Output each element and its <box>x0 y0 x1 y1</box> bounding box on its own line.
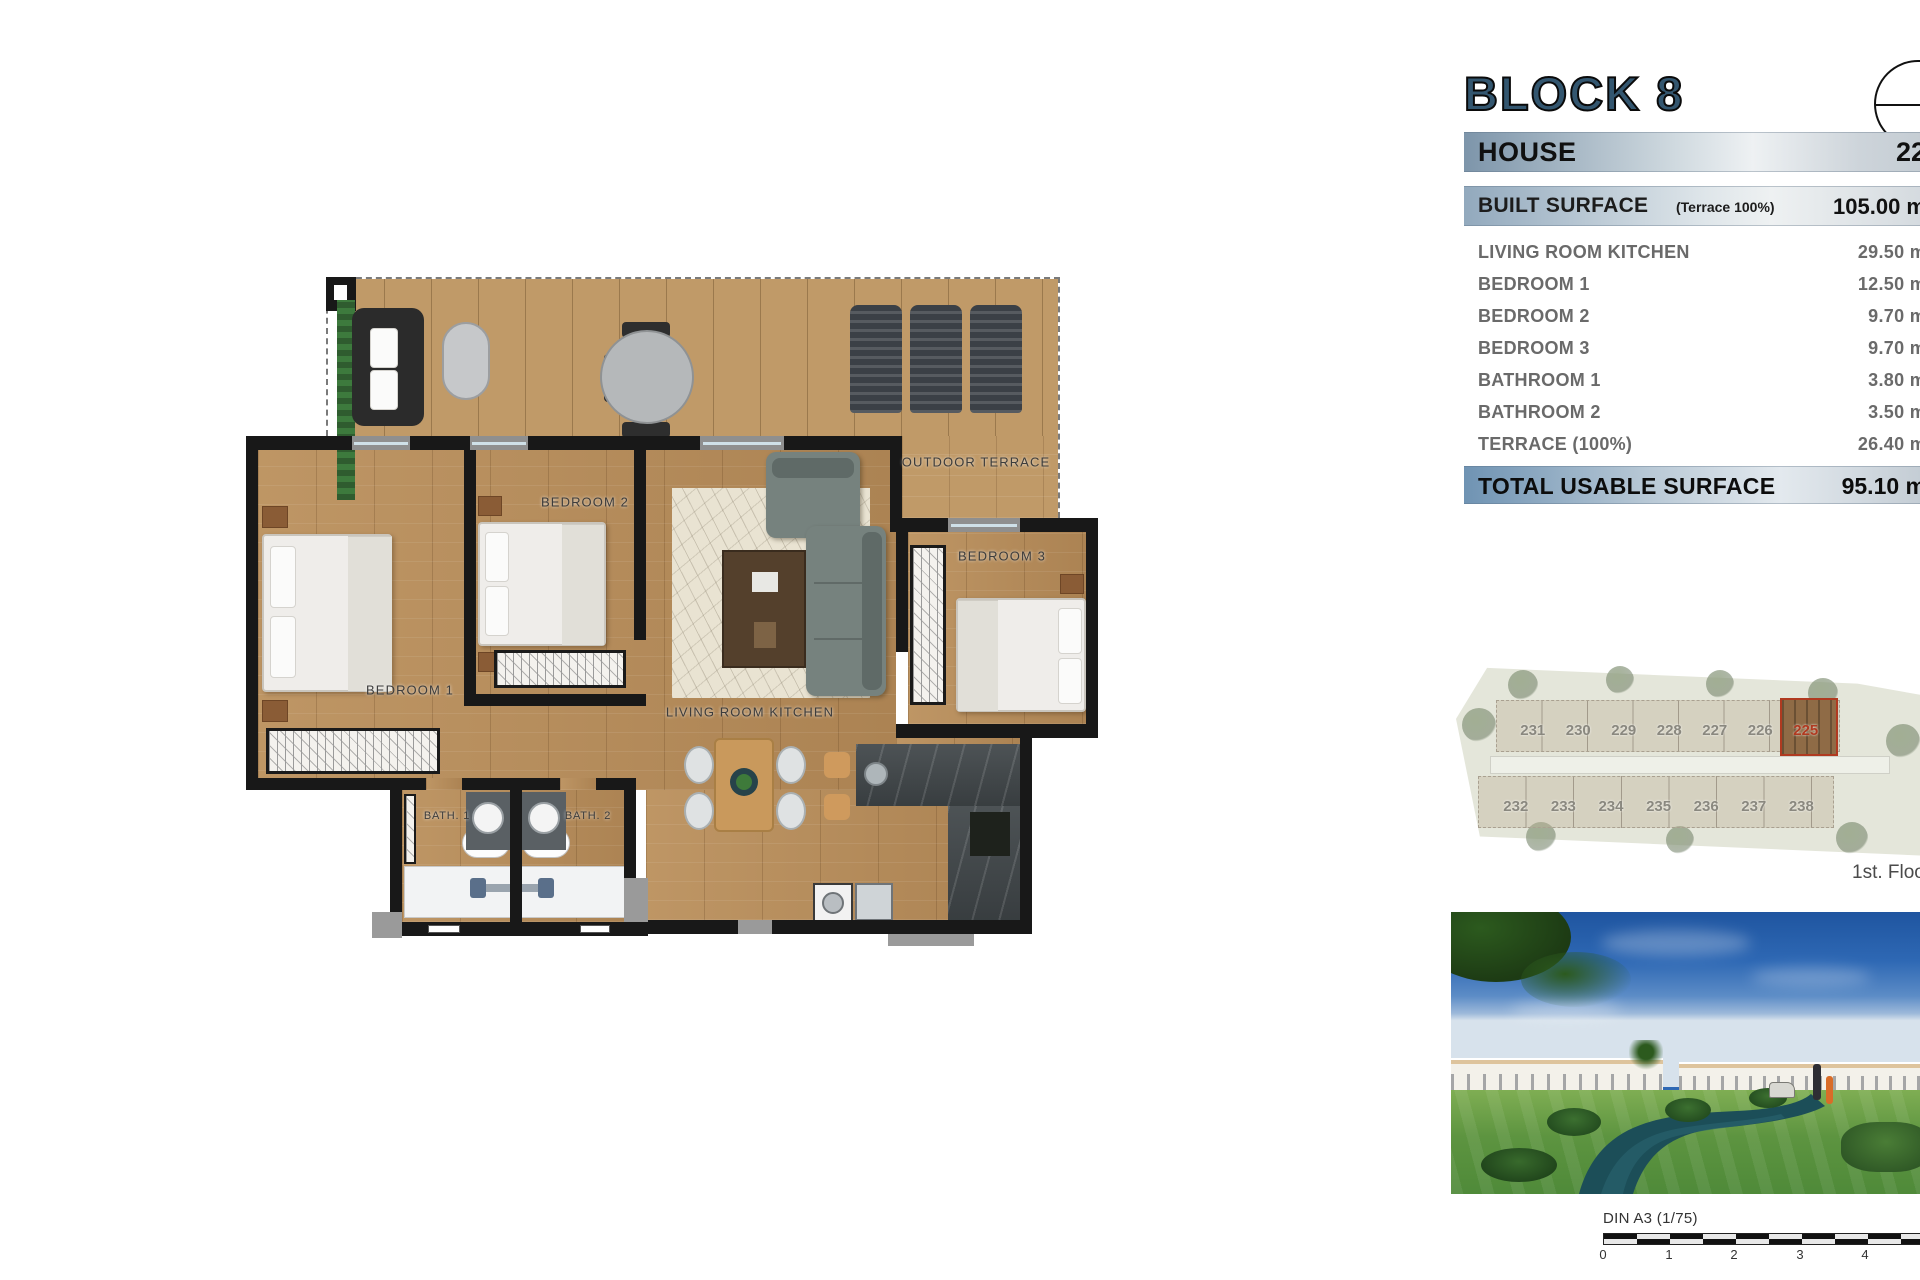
floor-caption: 1st. Floor <box>1852 862 1920 884</box>
nightstand <box>478 496 502 516</box>
kitchen-sink-unit <box>855 883 893 921</box>
sun-lounger <box>850 305 902 413</box>
unit-number: 236 <box>1682 798 1730 815</box>
dining-chair <box>684 746 714 784</box>
shower-head <box>538 878 554 898</box>
table-centerpiece <box>730 768 758 796</box>
bedroom3-wardrobe <box>910 545 946 705</box>
nightstand <box>262 506 288 528</box>
label-outdoor-terrace: OUTDOOR TERRACE <box>902 455 1050 470</box>
sun-lounger <box>970 305 1022 413</box>
unit-number: 228 <box>1647 722 1693 739</box>
unit-number: 231 <box>1510 722 1556 739</box>
house-label: HOUSE <box>1478 137 1577 168</box>
bedroom1-wardrobe <box>266 728 440 774</box>
terrace-sofa <box>352 308 424 426</box>
coffee-table <box>722 550 806 668</box>
bath2-vanity <box>522 792 566 850</box>
golf-cart <box>1769 1082 1795 1098</box>
surface-row: BEDROOM 1 12.50 m <box>1464 268 1920 300</box>
label-bedroom1: BEDROOM 1 <box>366 683 454 698</box>
surface-row-label: LIVING ROOM KITCHEN <box>1478 236 1690 268</box>
built-surface-label: BUILT SURFACE <box>1478 194 1648 218</box>
terrace-side-table <box>442 322 490 400</box>
surface-list: LIVING ROOM KITCHEN 29.50 m BEDROOM 1 12… <box>1464 236 1920 460</box>
siteplan-walkway <box>1490 756 1890 774</box>
scale-tick: 0 <box>1599 1247 1606 1262</box>
dining-chair <box>684 792 714 830</box>
unit-number: 229 <box>1601 722 1647 739</box>
surface-row-value: 29.50 m <box>1858 236 1920 268</box>
golfer <box>1826 1076 1833 1104</box>
bedroom1-bed <box>262 534 392 692</box>
dining-chair <box>776 746 806 784</box>
total-row: TOTAL USABLE SURFACE 95.10 m <box>1464 466 1920 504</box>
golf-course-photo <box>1451 912 1920 1194</box>
terrace-floor-right <box>902 436 1058 518</box>
built-surface-value: 105.00 m <box>1833 194 1920 220</box>
built-surface-note: (Terrace 100%) <box>1676 199 1775 215</box>
rough-grass <box>1841 1122 1920 1172</box>
sun-lounger <box>910 305 962 413</box>
shower-head <box>470 878 486 898</box>
kitchen-stove <box>970 812 1010 856</box>
siteplan-top-units: 231230229228227226225 <box>1510 722 1829 739</box>
scale-bar-label: DIN A3 (1/75) <box>1603 1210 1920 1227</box>
scale-bar: DIN A3 (1/75) 01234 <box>1603 1210 1920 1265</box>
golfer <box>1813 1064 1821 1100</box>
unit-number: 225 <box>1783 722 1829 739</box>
unit-number: 230 <box>1556 722 1602 739</box>
surface-row: LIVING ROOM KITCHEN 29.50 m <box>1464 236 1920 268</box>
siteplan: 231230229228227226225 232233234235236237… <box>1456 664 1920 860</box>
kitchen-stool <box>824 794 850 820</box>
surface-row: BATHROOM 2 3.50 m <box>1464 396 1920 428</box>
unit-number: 234 <box>1587 798 1635 815</box>
unit-number: 238 <box>1778 798 1826 815</box>
terrace-dashed-right <box>1058 277 1060 518</box>
bedroom2-bed <box>478 522 606 646</box>
unit-number: 226 <box>1738 722 1784 739</box>
surface-row-value: 3.80 m <box>1868 364 1920 396</box>
scale-tick: 1 <box>1665 1247 1672 1262</box>
sofa <box>806 526 886 696</box>
surface-row-label: TERRACE (100%) <box>1478 428 1632 460</box>
washing-machine <box>813 883 853 923</box>
nightstand <box>262 700 288 722</box>
nightstand <box>1060 574 1084 594</box>
bath-closet <box>404 794 416 864</box>
label-living-room: LIVING ROOM KITCHEN <box>666 705 834 720</box>
house-value: 22 <box>1896 137 1920 168</box>
surface-row-value: 12.50 m <box>1858 268 1920 300</box>
surface-row-label: BATHROOM 1 <box>1478 364 1601 396</box>
label-bedroom3: BEDROOM 3 <box>958 549 1046 564</box>
bedroom2-wardrobe <box>494 650 626 688</box>
kitchen-stool <box>824 752 850 778</box>
built-surface-row: BUILT SURFACE (Terrace 100%) 105.00 m <box>1464 186 1920 226</box>
siteplan-bottom-units: 232233234235236237238 <box>1492 798 1825 815</box>
scale-bar-graphic <box>1603 1233 1920 1245</box>
dining-chair <box>776 792 806 830</box>
surface-row-label: BEDROOM 2 <box>1478 300 1590 332</box>
surface-row-label: BATHROOM 2 <box>1478 396 1601 428</box>
scale-tick: 2 <box>1730 1247 1737 1262</box>
surface-row-label: BEDROOM 3 <box>1478 332 1590 364</box>
surface-row-value: 9.70 m <box>1868 332 1920 364</box>
terrace-dining-table <box>600 330 694 424</box>
unit-number: 237 <box>1730 798 1778 815</box>
unit-number: 227 <box>1692 722 1738 739</box>
total-value: 95.10 m <box>1842 473 1920 500</box>
surface-row: BEDROOM 2 9.70 m <box>1464 300 1920 332</box>
surface-row-value: 3.50 m <box>1868 396 1920 428</box>
bedroom3-bed <box>956 598 1086 712</box>
unit-number: 235 <box>1635 798 1683 815</box>
label-bath2: BATH. 2 <box>565 810 611 822</box>
surface-row: TERRACE (100%) 26.40 m <box>1464 428 1920 460</box>
bath1-vanity <box>466 792 510 850</box>
surface-row-value: 9.70 m <box>1868 300 1920 332</box>
bush <box>1547 1108 1601 1136</box>
plan-sheet: OUTDOOR TERRACE BEDROOM 1 BEDROOM 2 BEDR… <box>0 0 1920 1280</box>
surface-row-value: 26.40 m <box>1858 428 1920 460</box>
surface-row-label: BEDROOM 1 <box>1478 268 1590 300</box>
unit-number: 232 <box>1492 798 1540 815</box>
scale-tick: 3 <box>1796 1247 1803 1262</box>
unit-number: 233 <box>1540 798 1588 815</box>
label-bedroom2: BEDROOM 2 <box>541 495 629 510</box>
surface-row: BATHROOM 1 3.80 m <box>1464 364 1920 396</box>
label-bath1: BATH. 1 <box>424 810 470 822</box>
total-label: TOTAL USABLE SURFACE <box>1478 473 1775 500</box>
block-title: BLOCK 8 <box>1464 66 1684 121</box>
surface-row: BEDROOM 3 9.70 m <box>1464 332 1920 364</box>
terrace-dashed-top <box>326 277 1060 279</box>
house-row: HOUSE 22 <box>1464 132 1920 172</box>
kitchen-sink <box>864 762 888 786</box>
scale-tick: 4 <box>1861 1247 1868 1262</box>
bush <box>1665 1098 1711 1122</box>
bush <box>1481 1148 1557 1182</box>
scale-bar-ticks: 01234 <box>1603 1247 1920 1265</box>
